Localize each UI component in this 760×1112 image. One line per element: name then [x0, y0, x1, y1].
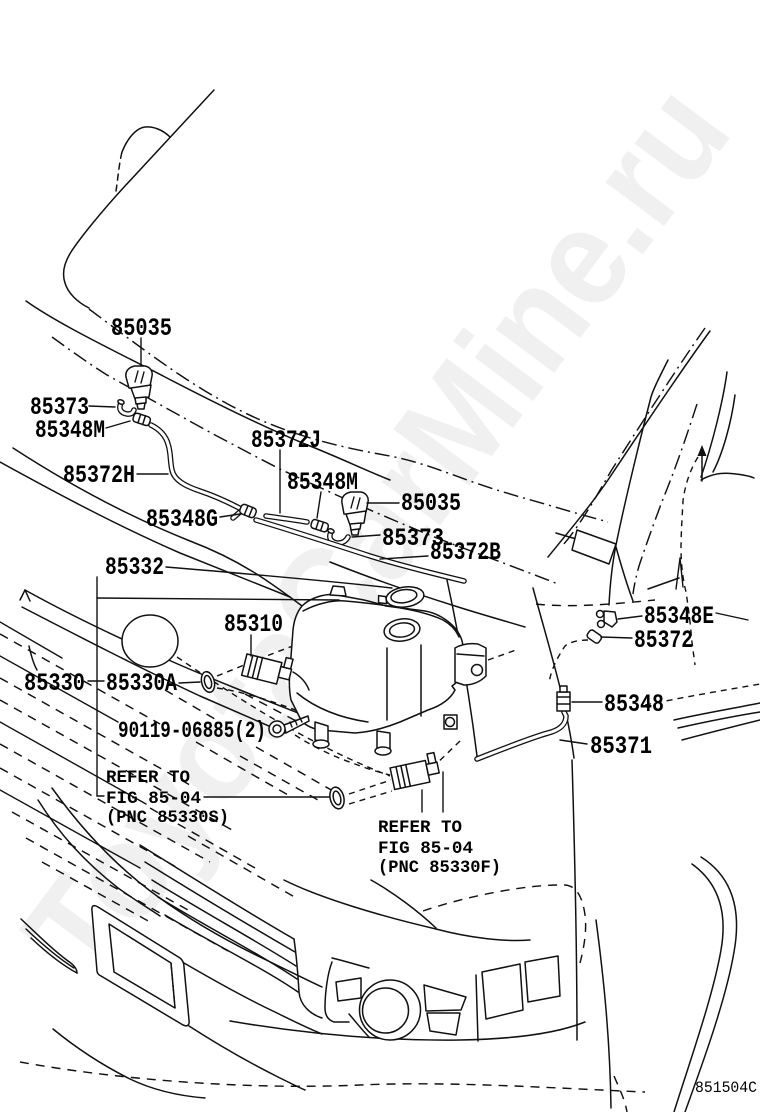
svg-text:85371: 85371 [590, 732, 652, 761]
svg-text:85332: 85332 [105, 553, 164, 582]
svg-text:(PNC 85330F): (PNC 85330F) [378, 858, 501, 878]
svg-text:85035: 85035 [401, 489, 461, 518]
svg-text:85330A: 85330A [106, 669, 177, 698]
svg-text:85348G: 85348G [146, 505, 218, 534]
svg-text:85348M: 85348M [287, 468, 358, 497]
svg-text:FIG 85-04: FIG 85-04 [378, 839, 473, 859]
svg-text:85348M: 85348M [35, 416, 105, 445]
svg-text:REFER TO: REFER TO [378, 818, 462, 838]
svg-text:85330: 85330 [24, 669, 85, 698]
svg-text:85035: 85035 [111, 314, 172, 343]
svg-text:85310: 85310 [224, 610, 283, 639]
svg-text:85348: 85348 [604, 690, 664, 719]
svg-text:FIG 85-04: FIG 85-04 [106, 789, 201, 809]
svg-text:85372B: 85372B [430, 538, 501, 567]
svg-text:85372H: 85372H [63, 461, 135, 490]
svg-text:REFER TO: REFER TO [106, 768, 190, 788]
svg-text:(PNC 85330S): (PNC 85330S) [106, 808, 229, 828]
svg-text:85372: 85372 [634, 626, 693, 655]
svg-text:90119-06885(2): 90119-06885(2) [118, 718, 266, 744]
svg-text:851504C: 851504C [695, 1079, 757, 1097]
svg-text:85372J: 85372J [251, 426, 321, 455]
